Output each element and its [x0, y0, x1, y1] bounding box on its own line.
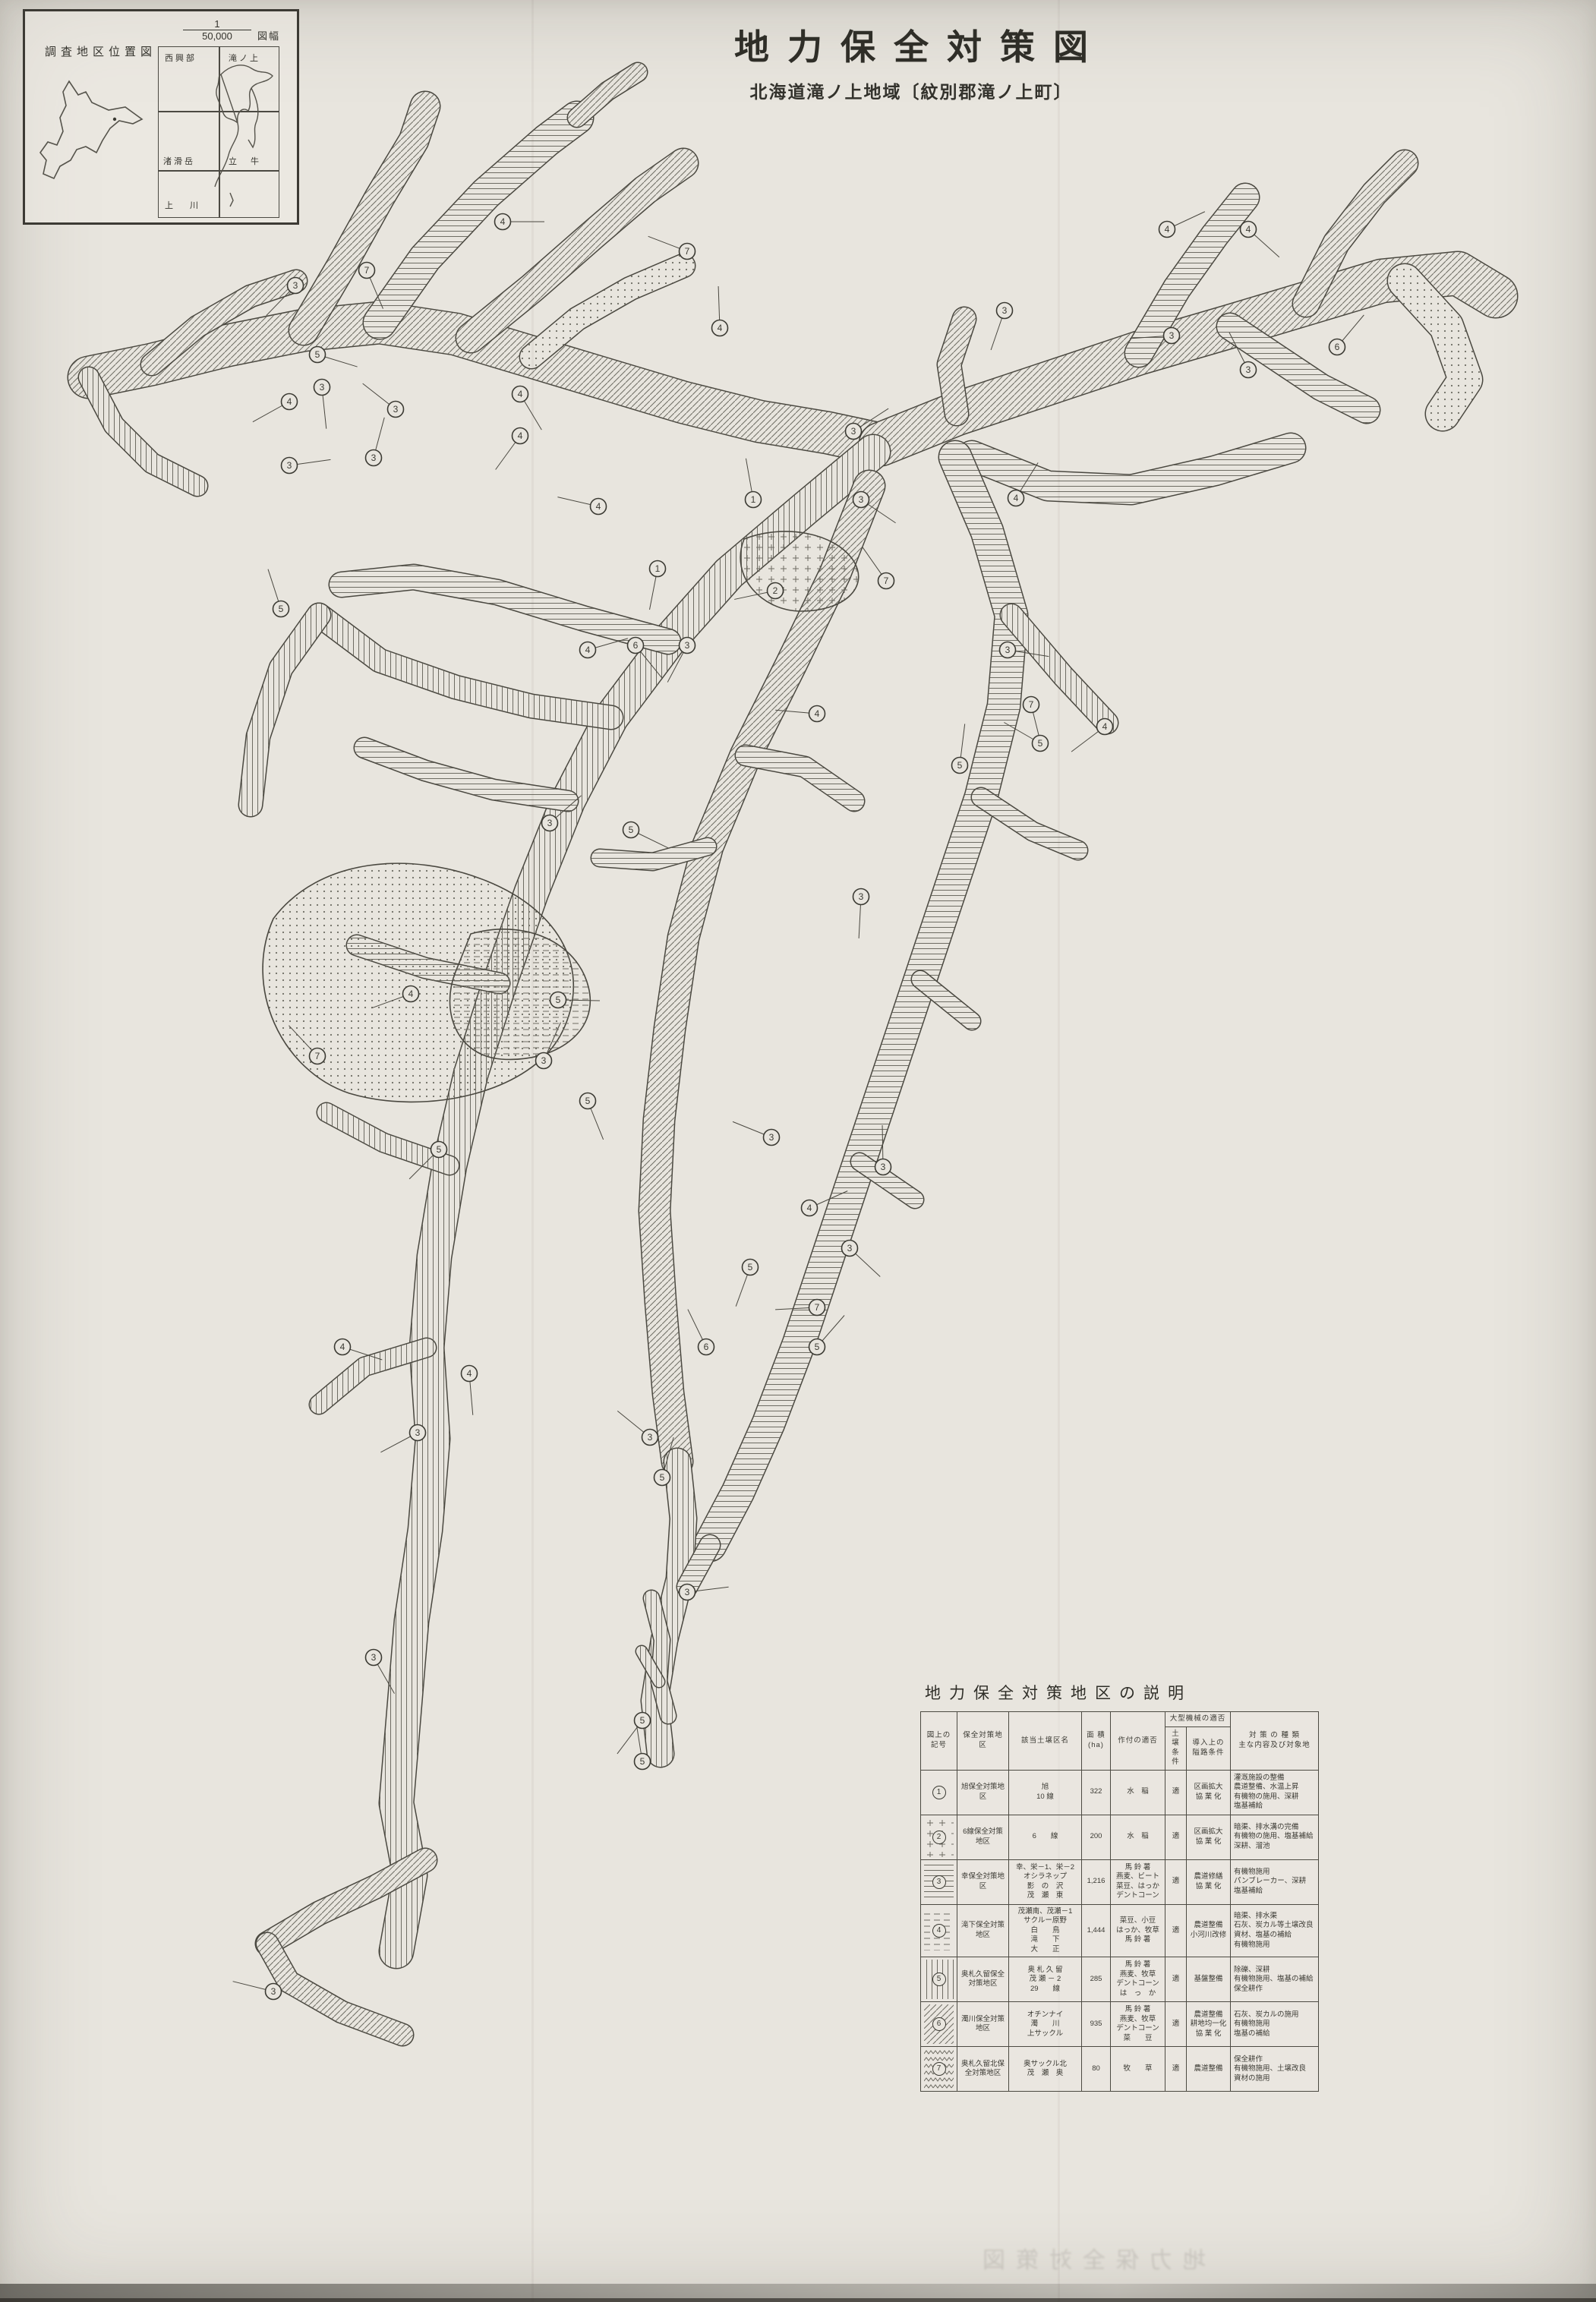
svg-text:4: 4 — [408, 989, 414, 999]
svg-text:3: 3 — [371, 1652, 377, 1663]
svg-text:3: 3 — [881, 1162, 886, 1172]
soil-zone-cell: 旭10 線 — [1009, 1770, 1082, 1815]
map-marker: 1 — [650, 561, 666, 577]
map-canvas: 4737444333653433344413312743745546345353… — [0, 0, 1596, 2302]
measures-header-line1: 対 策 の 種 類 — [1249, 1731, 1300, 1739]
map-marker: 5 — [550, 992, 566, 1008]
map-marker: 4 — [712, 320, 728, 336]
map-marker: 3 — [842, 1241, 858, 1257]
svg-text:5: 5 — [1038, 738, 1043, 749]
svg-text:3: 3 — [547, 818, 553, 828]
paper-fold-crease — [531, 0, 534, 2302]
map-marker: 3 — [266, 1984, 282, 2000]
district-name-cell: 旭保全対策地区 — [957, 1770, 1009, 1815]
legend-row: 7奥札久留北保全対策地区奥サックル北茂 瀬 奥80牧 草適農道整備保全耕作有機物… — [921, 2047, 1319, 2092]
circled-number: 4 — [932, 1924, 946, 1938]
svg-text:3: 3 — [271, 1986, 276, 1997]
legend-row: 5奥札久留保全対策地区奥 札 久 留茂 瀬 － 229 線285馬 鈴 薯燕麦、… — [921, 1957, 1319, 2002]
map-marker: 3 — [1000, 642, 1016, 658]
measures-cell: 暗渠、排水渠石灰、炭カル等土壌改良資材、塩基の補給有機物施用 — [1231, 1904, 1319, 1957]
map-marker: 3 — [366, 450, 382, 466]
bottleneck-cell: 農道整備小河川改修 — [1187, 1904, 1231, 1957]
svg-text:4: 4 — [1246, 224, 1251, 235]
bottleneck-cell: 農道整備耕地均一化協 業 化 — [1187, 2002, 1231, 2047]
map-symbol-swatch: 7 — [921, 2047, 957, 2092]
soil-zone-cell: オチンナイ濁 川上サックル — [1009, 2002, 1082, 2047]
legend-panel: 地力保全対策地区の説明 図上の記号 保全対策地区 該当土壌区名 面 積 (ha)… — [920, 1681, 1319, 2092]
svg-text:5: 5 — [279, 604, 284, 614]
map-marker: 7 — [310, 1049, 326, 1064]
legend-row: 1旭保全対策地区旭10 線322水 稲適区画拡大協 業 化灌漑施設の整備農道整備… — [921, 1770, 1319, 1815]
soil-zone-cell: 6 線 — [1009, 1815, 1082, 1859]
measures-cell: 保全耕作有機物施用、土壌改良資材の施用 — [1231, 2047, 1319, 2092]
map-marker: 3 — [997, 303, 1013, 319]
col-header-machine-group: 大型機械の適否 — [1165, 1712, 1231, 1727]
map-marker: 3 — [410, 1425, 426, 1441]
map-marker: 3 — [314, 380, 330, 396]
scale-denominator: 50,000 — [183, 30, 251, 43]
svg-text:5: 5 — [815, 1342, 820, 1352]
area-cell: 1,216 — [1082, 1859, 1111, 1904]
map-marker: 7 — [359, 263, 375, 279]
legend-row: 3幸保全対策地区幸、栄－1、栄－2オシラネップ影 の 沢茂 瀬 東1,216馬 … — [921, 1859, 1319, 1904]
bottleneck-cell: 農道修繕協 業 化 — [1187, 1859, 1231, 1904]
district-name-cell: 奥札久留保全対策地区 — [957, 1957, 1009, 2002]
map-marker: 4 — [495, 214, 511, 230]
map-marker: 7 — [878, 573, 894, 589]
legend-title: 地力保全対策地区の説明 — [925, 1681, 1319, 1704]
col-header-machine-soil: 土壌条件 — [1165, 1726, 1187, 1770]
map-marker: 4 — [513, 428, 528, 444]
measures-header-line2: 主な内容及び対象地 — [1238, 1741, 1311, 1749]
map-marker: 6 — [699, 1339, 714, 1355]
crops-cell: 馬 鈴 薯燕麦、ビート菜豆、はっかデントコーン — [1111, 1859, 1165, 1904]
map-marker: 5 — [273, 601, 289, 617]
district-outline-mini — [188, 58, 277, 210]
map-marker: 5 — [635, 1754, 651, 1770]
sheet-index-grid: 西興部 滝ノ上 渚滑岳 立牛 上川 — [158, 46, 279, 218]
crops-cell: 菜豆、小豆はっか、牧草馬 鈴 薯 — [1111, 1904, 1165, 1957]
bottleneck-cell: 区画拡大協 業 化 — [1187, 1770, 1231, 1815]
map-marker: 4 — [513, 386, 528, 402]
svg-text:5: 5 — [315, 349, 320, 360]
offset-print-ghost: 地力保全対策図 — [972, 2241, 1206, 2275]
soil-zone-cell: 奥サックル北茂 瀬 奥 — [1009, 2047, 1082, 2092]
location-inset-map: 調査地区位置図 1 50,000 図幅 西興部 滝ノ上 渚滑岳 立牛 上川 — [23, 9, 299, 225]
district-name-cell: 6線保全対策地区 — [957, 1815, 1009, 1859]
map-marker: 3 — [366, 1650, 382, 1666]
svg-text:4: 4 — [340, 1342, 345, 1352]
svg-text:7: 7 — [315, 1051, 320, 1061]
map-marker: 4 — [802, 1200, 818, 1216]
svg-text:3: 3 — [393, 404, 399, 415]
bottleneck-cell: 農道整備 — [1187, 2047, 1231, 2092]
map-marker: 1 — [746, 492, 762, 508]
svg-text:3: 3 — [1246, 364, 1251, 375]
svg-text:3: 3 — [847, 1243, 853, 1253]
map-marker: 5 — [809, 1339, 825, 1355]
svg-text:7: 7 — [364, 265, 370, 276]
map-marker: 4 — [403, 986, 419, 1002]
svg-text:4: 4 — [585, 645, 591, 655]
map-marker: 4 — [1008, 490, 1024, 506]
col-header-symbol: 図上の記号 — [921, 1712, 957, 1771]
measures-cell: 石灰、炭カルの施用有機物施用塩基の補給 — [1231, 2002, 1319, 2047]
svg-text:4: 4 — [815, 708, 820, 719]
district-name-cell: 滝下保全対策地区 — [957, 1904, 1009, 1957]
map-marker: 4 — [809, 706, 825, 722]
svg-text:2: 2 — [773, 585, 778, 596]
crops-cell: 牧 草 — [1111, 2047, 1165, 2092]
map-marker: 3 — [288, 278, 304, 294]
svg-text:5: 5 — [660, 1472, 665, 1483]
area-cell: 322 — [1082, 1770, 1111, 1815]
soil-condition-cell: 適 — [1165, 1904, 1187, 1957]
map-marker: 4 — [591, 499, 607, 515]
area-cell: 285 — [1082, 1957, 1111, 2002]
svg-text:3: 3 — [1002, 305, 1008, 316]
map-marker: 4 — [1159, 222, 1175, 238]
map-marker: 7 — [680, 244, 695, 260]
circled-number: 7 — [932, 2062, 946, 2076]
map-marker: 5 — [952, 758, 968, 774]
map-marker: 4 — [335, 1339, 351, 1355]
map-marker: 4 — [1097, 719, 1113, 735]
svg-text:4: 4 — [467, 1368, 472, 1379]
svg-text:1: 1 — [655, 563, 661, 574]
area-cell: 80 — [1082, 2047, 1111, 2092]
svg-text:7: 7 — [815, 1302, 820, 1313]
map-marker: 6 — [1329, 339, 1345, 355]
district-name-cell: 奥札久留北保全対策地区 — [957, 2047, 1009, 2092]
svg-text:3: 3 — [648, 1432, 653, 1443]
area-header-line1: 面 積 — [1087, 1731, 1106, 1739]
circled-number: 6 — [932, 2017, 946, 2031]
svg-text:5: 5 — [748, 1262, 753, 1272]
svg-text:4: 4 — [718, 323, 723, 333]
svg-text:4: 4 — [807, 1203, 812, 1213]
svg-text:7: 7 — [685, 246, 690, 257]
map-marker: 3 — [1164, 328, 1180, 344]
svg-text:3: 3 — [371, 453, 377, 463]
map-marker: 3 — [680, 638, 695, 654]
inset-title: 調査地区位置図 — [45, 43, 156, 59]
area-header-line2: (ha) — [1088, 1741, 1104, 1749]
title-block: 地力保全対策図 北海道滝ノ上地域〔紋別郡滝ノ上町〕 — [668, 20, 1154, 103]
svg-text:6: 6 — [1335, 342, 1340, 352]
svg-text:4: 4 — [518, 389, 523, 399]
map-marker: 5 — [310, 347, 326, 363]
soil-condition-cell: 適 — [1165, 1957, 1187, 2002]
map-marker: 3 — [853, 492, 869, 508]
soil-condition-cell: 適 — [1165, 2002, 1187, 2047]
map-marker: 3 — [846, 424, 862, 440]
map-marker: 4 — [580, 642, 596, 658]
legend-row: 6濁川保全対策地区オチンナイ濁 川上サックル935馬 鈴 薯燕麦、牧草デントコー… — [921, 2002, 1319, 2047]
map-marker: 3 — [764, 1130, 780, 1146]
map-symbol-swatch: 4 — [921, 1904, 957, 1957]
svg-text:3: 3 — [859, 494, 864, 505]
crops-cell: 水 稲 — [1111, 1770, 1165, 1815]
svg-text:4: 4 — [596, 501, 601, 512]
map-marker: 3 — [1241, 362, 1257, 378]
soil-condition-cell: 適 — [1165, 1770, 1187, 1815]
scan-edge-line — [0, 2298, 1596, 2302]
hokkaido-outline — [36, 77, 157, 215]
svg-text:4: 4 — [287, 396, 292, 407]
map-scale-fraction: 1 50,000 — [183, 19, 251, 43]
svg-text:6: 6 — [704, 1342, 709, 1352]
page-subtitle: 北海道滝ノ上地域〔紋別郡滝ノ上町〕 — [668, 77, 1154, 103]
map-symbol-swatch: 2 — [921, 1815, 957, 1859]
col-header-soil-zone: 該当土壌区名 — [1009, 1712, 1082, 1771]
map-marker: 5 — [654, 1470, 670, 1486]
col-header-measures: 対 策 の 種 類 主な内容及び対象地 — [1231, 1712, 1319, 1771]
svg-text:5: 5 — [640, 1715, 645, 1726]
bottleneck-cell: 基盤整備 — [1187, 1957, 1231, 2002]
measures-cell: 灌漑施設の整備農道整備、水温上昇有機物の施用、深耕塩基補給 — [1231, 1770, 1319, 1815]
soil-condition-cell: 適 — [1165, 1815, 1187, 1859]
svg-text:7: 7 — [1029, 699, 1034, 710]
svg-text:3: 3 — [769, 1132, 774, 1143]
circled-number: 5 — [932, 1972, 946, 1986]
map-symbol-swatch: 1 — [921, 1770, 957, 1815]
scanned-map-page: { "header": { "title": "地力保全対策図", "subti… — [0, 0, 1596, 2302]
svg-text:5: 5 — [585, 1096, 591, 1106]
svg-text:5: 5 — [957, 760, 963, 771]
map-marker: 2 — [768, 583, 784, 599]
svg-text:3: 3 — [287, 460, 292, 471]
svg-text:4: 4 — [1165, 224, 1170, 235]
scale-numerator: 1 — [183, 19, 251, 30]
bottleneck-cell: 区画拡大協 業 化 — [1187, 1815, 1231, 1859]
circled-number: 3 — [932, 1875, 946, 1889]
measures-cell: 除礫、深耕有機物施用、塩基の補給保全耕作 — [1231, 1957, 1319, 2002]
svg-text:3: 3 — [851, 426, 856, 437]
map-marker: 3 — [680, 1585, 695, 1600]
map-symbol-swatch: 6 — [921, 2002, 957, 2047]
district-name-cell: 幸保全対策地区 — [957, 1859, 1009, 1904]
col-header-area: 面 積 (ha) — [1082, 1712, 1111, 1771]
map-marker: 5 — [635, 1713, 651, 1729]
col-header-district: 保全対策地区 — [957, 1712, 1009, 1771]
col-header-machine-bottleneck: 導入上の隘路条件 — [1187, 1726, 1231, 1770]
map-marker: 3 — [642, 1430, 658, 1446]
map-marker: 3 — [536, 1053, 552, 1069]
svg-text:7: 7 — [884, 575, 889, 586]
map-marker: 3 — [875, 1159, 891, 1175]
crops-cell: 馬 鈴 薯燕麦、牧草デントコーンは っ か — [1111, 1957, 1165, 2002]
soil-condition-cell: 適 — [1165, 1859, 1187, 1904]
district-name-cell: 濁川保全対策地区 — [957, 2002, 1009, 2047]
map-marker: 5 — [580, 1093, 596, 1109]
area-cell: 935 — [1082, 2002, 1111, 2047]
page-title: 地力保全対策図 — [668, 20, 1172, 70]
circled-number: 2 — [932, 1831, 946, 1844]
soil-zone-cell: 奥 札 久 留茂 瀬 － 229 線 — [1009, 1957, 1082, 2002]
soil-zone-cell: 茂瀬南、茂瀬－1サクルー原野白 鳥滝 下大 正 — [1009, 1904, 1082, 1957]
map-marker: 5 — [623, 822, 639, 838]
map-marker: 4 — [462, 1366, 478, 1382]
map-marker: 5 — [1033, 736, 1049, 752]
legend-row: 4滝下保全対策地区茂瀬南、茂瀬－1サクルー原野白 鳥滝 下大 正1,444菜豆、… — [921, 1904, 1319, 1957]
svg-text:3: 3 — [1005, 645, 1011, 655]
map-marker: 3 — [388, 402, 404, 418]
svg-text:1: 1 — [751, 494, 756, 505]
map-marker: 5 — [431, 1142, 447, 1158]
svg-text:3: 3 — [320, 382, 325, 393]
map-marker: 5 — [743, 1260, 759, 1276]
map-marker: 3 — [853, 889, 869, 905]
soil-condition-cell: 適 — [1165, 2047, 1187, 2092]
svg-text:3: 3 — [859, 891, 864, 902]
measures-cell: 暗渠、排水溝の完備有機物の施用、塩基補給深耕、溜池 — [1231, 1815, 1319, 1859]
map-marker: 4 — [1241, 222, 1257, 238]
svg-text:5: 5 — [640, 1756, 645, 1767]
svg-text:3: 3 — [685, 1587, 690, 1597]
legend-row: 26線保全対策地区6 線200水 稲適区画拡大協 業 化暗渠、排水溝の完備有機物… — [921, 1815, 1319, 1859]
svg-text:3: 3 — [1169, 330, 1175, 341]
crops-cell: 馬 鈴 薯燕麦、牧草デントコーン菜 豆 — [1111, 2002, 1165, 2047]
svg-text:5: 5 — [437, 1144, 442, 1155]
svg-text:4: 4 — [1014, 493, 1019, 503]
map-marker: 4 — [282, 394, 298, 410]
map-marker: 6 — [628, 638, 644, 654]
map-marker: 7 — [809, 1300, 825, 1316]
area-cell: 1,444 — [1082, 1904, 1111, 1957]
scale-sheet-label: 図幅 — [257, 28, 280, 43]
crops-cell: 水 稲 — [1111, 1815, 1165, 1859]
svg-text:4: 4 — [500, 216, 506, 227]
svg-text:3: 3 — [415, 1427, 421, 1438]
soil-zone-cell: 幸、栄－1、栄－2オシラネップ影 の 沢茂 瀬 東 — [1009, 1859, 1082, 1904]
legend-table: 図上の記号 保全対策地区 該当土壌区名 面 積 (ha) 作付の適否 大型機械の… — [920, 1711, 1319, 2092]
svg-text:3: 3 — [541, 1055, 547, 1066]
map-symbol-swatch: 5 — [921, 1957, 957, 2002]
circled-number: 1 — [932, 1786, 946, 1799]
svg-text:3: 3 — [685, 640, 690, 651]
map-symbol-swatch: 3 — [921, 1859, 957, 1904]
svg-text:4: 4 — [518, 430, 523, 441]
svg-text:4: 4 — [1102, 721, 1108, 732]
svg-text:5: 5 — [629, 825, 634, 835]
col-header-crops: 作付の適否 — [1111, 1712, 1165, 1771]
measures-cell: 有機物施用パンブレーカー、深耕塩基補給 — [1231, 1859, 1319, 1904]
map-marker: 7 — [1024, 697, 1039, 713]
svg-text:3: 3 — [293, 280, 298, 291]
svg-text:5: 5 — [556, 995, 561, 1005]
map-marker: 3 — [542, 815, 558, 831]
map-marker: 3 — [282, 458, 298, 474]
area-cell: 200 — [1082, 1815, 1111, 1859]
svg-text:6: 6 — [633, 640, 639, 651]
